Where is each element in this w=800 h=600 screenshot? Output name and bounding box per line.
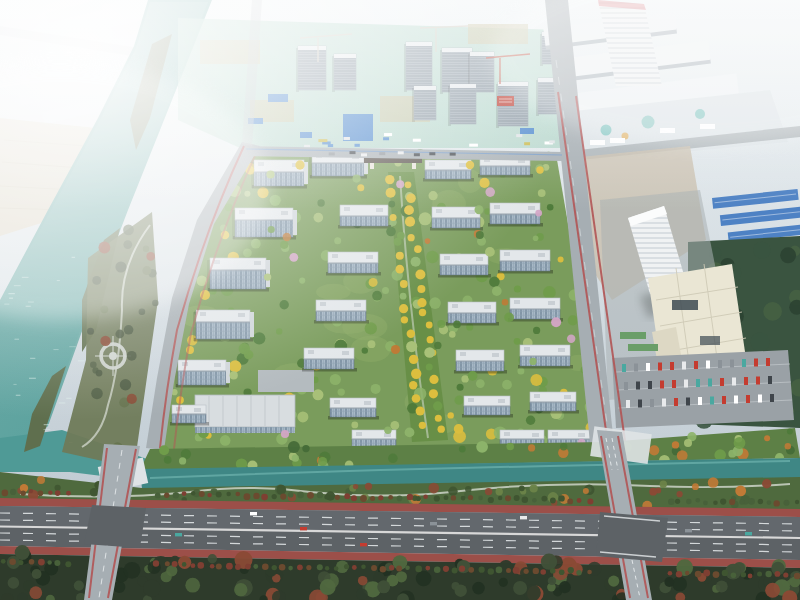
street-tree (461, 496, 466, 501)
ginkgo-tree (386, 227, 396, 237)
tree (492, 286, 502, 296)
tree (514, 285, 521, 292)
tree (543, 286, 556, 299)
street-tree (261, 494, 268, 501)
street-tree (165, 561, 170, 566)
ginkgo-tree (401, 316, 408, 323)
tree (99, 242, 111, 254)
car (745, 532, 752, 535)
ginkgo-tree (406, 193, 416, 203)
street-tree (253, 564, 258, 569)
tree (299, 278, 305, 284)
tree (351, 422, 358, 429)
street-tree (488, 497, 494, 503)
street-tree (703, 570, 710, 577)
tree (429, 483, 440, 494)
ginkgo-tree (419, 309, 426, 316)
tree (664, 577, 674, 587)
street-tree (191, 563, 196, 568)
tree (377, 580, 390, 593)
parked-car (660, 381, 664, 389)
parked-car (682, 362, 686, 370)
street-tree (47, 560, 51, 564)
tree (230, 371, 238, 379)
street-tree (587, 570, 592, 575)
site-vehicle (328, 144, 333, 147)
parked-car (696, 379, 700, 387)
car (250, 512, 257, 515)
tree (37, 476, 45, 484)
street-tree (48, 490, 52, 494)
street-tree (370, 496, 375, 501)
street-tree (210, 564, 215, 569)
tree (734, 437, 746, 449)
ginkgo-tree (390, 214, 397, 221)
apartment-building (462, 396, 513, 418)
tree (124, 562, 141, 579)
tree (318, 457, 327, 466)
apartment-building (314, 300, 369, 324)
street-tree (199, 491, 205, 497)
construction-banner (497, 96, 514, 106)
street-tree (207, 493, 211, 497)
ginkgo-tree (429, 389, 438, 398)
ginkgo-tree (405, 217, 415, 227)
tree (419, 212, 432, 225)
tree (780, 247, 796, 263)
tree (123, 240, 132, 249)
building-facade (328, 263, 378, 273)
tree (499, 578, 508, 587)
tree (535, 210, 542, 217)
parked-car (730, 360, 734, 368)
tree (608, 576, 619, 587)
tree (123, 225, 134, 236)
street-tree (55, 490, 61, 496)
tree (506, 443, 514, 451)
street-tree (434, 495, 440, 501)
street-tree (522, 497, 528, 503)
tree (185, 578, 200, 593)
street-tree (731, 572, 737, 578)
apartment-building (498, 250, 553, 274)
tree (677, 450, 688, 461)
tree (244, 191, 250, 197)
street-tree (380, 566, 386, 572)
apartment-building (326, 252, 381, 276)
ginkgo-tree (405, 181, 412, 188)
parked-car (766, 358, 770, 366)
tree (253, 332, 265, 344)
aerial-photo (0, 0, 800, 600)
tree (714, 449, 726, 461)
street-tree (488, 568, 494, 574)
tree (485, 488, 492, 495)
parked-car (756, 377, 760, 385)
tree (468, 371, 478, 381)
tree (558, 256, 564, 262)
street-tree (425, 566, 430, 571)
building-facade (178, 371, 226, 385)
site-vehicle (384, 133, 392, 136)
ginkgo-tree (394, 238, 402, 246)
tree (568, 315, 578, 325)
parked-car (744, 377, 748, 385)
tree (426, 251, 438, 263)
car (361, 153, 367, 156)
apartment-building (488, 203, 543, 227)
street-tree (335, 495, 340, 500)
street-tree (244, 493, 251, 500)
street-tree (514, 495, 520, 501)
tree (528, 444, 535, 451)
ginkgo-tree (400, 280, 408, 288)
intersection (84, 505, 146, 548)
ginkgo-tree (400, 293, 407, 300)
parked-car (768, 376, 772, 384)
street-tree (324, 495, 329, 500)
car (329, 152, 335, 155)
street-tree (443, 566, 449, 572)
tree (459, 446, 466, 453)
parked-car (622, 364, 626, 372)
tree (115, 330, 124, 339)
street-tree (434, 567, 441, 574)
street-tree (720, 499, 726, 505)
street-tree (675, 499, 680, 504)
parked-car (710, 397, 714, 405)
tree (530, 484, 538, 492)
ginkgo-tree (409, 355, 418, 364)
tree (143, 246, 149, 252)
street-tree (444, 495, 449, 500)
parked-car (722, 396, 726, 404)
tree (87, 328, 94, 335)
parked-car (694, 361, 698, 369)
street-tree (729, 499, 735, 505)
street-tree (226, 492, 230, 496)
ginkgo-tree (411, 369, 421, 379)
tree (96, 370, 103, 377)
building-facade (500, 261, 550, 271)
ginkgo-tree (426, 322, 433, 329)
tree (365, 483, 372, 490)
tree (502, 299, 509, 306)
tree (390, 421, 399, 430)
parked-car (662, 399, 666, 407)
tree (453, 321, 461, 329)
ginkgo-tree (409, 381, 417, 389)
apartment-building (338, 205, 391, 229)
tree (489, 276, 500, 287)
tree (551, 317, 561, 327)
car (450, 153, 456, 156)
car (430, 522, 437, 525)
street-tree (496, 567, 503, 574)
apartment-building (207, 258, 270, 292)
tree (567, 335, 575, 343)
street-tree (226, 563, 233, 570)
aerial-scene-canvas (0, 0, 800, 600)
site-vehicle (413, 139, 421, 142)
building-facade (210, 270, 266, 289)
building-facade (254, 172, 304, 186)
street-tree (272, 494, 277, 499)
tree (504, 313, 514, 323)
tree (179, 457, 186, 464)
tree (476, 379, 485, 388)
site-vehicle (549, 140, 555, 143)
ginkgo-tree (424, 347, 435, 358)
building-facade (490, 214, 540, 224)
tree (476, 441, 488, 453)
street-tree (576, 570, 581, 575)
construction-tower (412, 86, 436, 122)
construction-tower (448, 84, 476, 126)
tree (461, 375, 468, 382)
tree (787, 428, 793, 434)
tree (270, 195, 281, 206)
tree (455, 396, 464, 405)
tree (429, 297, 441, 309)
ginkgo-tree (419, 422, 426, 429)
tree (257, 187, 268, 198)
parked-car (638, 400, 642, 408)
site-vehicle (343, 137, 349, 140)
tree (32, 569, 42, 579)
tree (120, 379, 131, 390)
tree (288, 441, 300, 453)
site-vehicle (355, 144, 360, 147)
tree (127, 394, 137, 404)
street-tree (550, 498, 556, 504)
tree (358, 576, 368, 586)
tree (90, 488, 98, 496)
street-tree (741, 572, 746, 577)
street-tree (765, 571, 771, 577)
street-tree (587, 498, 593, 504)
car (429, 152, 435, 155)
tree (100, 336, 110, 346)
tree (514, 338, 521, 345)
tree (692, 483, 699, 490)
tree (479, 178, 489, 188)
street-tree (540, 569, 546, 575)
tree (457, 384, 464, 391)
tree (533, 327, 540, 334)
tree (559, 581, 571, 593)
street-tree (272, 565, 277, 570)
street-tree (153, 560, 159, 566)
ginkgo-tree (411, 257, 421, 267)
street-tree (505, 495, 511, 501)
street-tree (172, 561, 178, 567)
tree (765, 583, 780, 598)
street-tree (676, 571, 682, 577)
tree (313, 389, 324, 400)
tree (142, 266, 151, 275)
street-tree (773, 500, 779, 506)
tree (735, 486, 746, 497)
street-tree (423, 495, 428, 500)
tree (283, 233, 291, 241)
apartment-building (438, 254, 491, 278)
tree (764, 435, 770, 441)
ginkgo-tree (388, 201, 395, 208)
tree (100, 305, 108, 313)
building-facade (425, 170, 471, 179)
tree (152, 300, 158, 306)
street-tree (713, 571, 720, 578)
street-tree (360, 495, 367, 502)
street-tree (685, 571, 689, 575)
street-tree (775, 571, 781, 577)
parked-car (624, 382, 628, 390)
street-tree (18, 560, 23, 565)
street-tree (748, 574, 753, 579)
street-tree (307, 492, 314, 499)
tree (289, 253, 298, 262)
tree (29, 586, 42, 599)
tree (229, 360, 241, 372)
tree (391, 345, 400, 354)
tree (530, 374, 542, 386)
tree (208, 554, 217, 563)
tree (513, 581, 527, 595)
tree (276, 485, 286, 495)
tree (372, 291, 382, 301)
street-tree (451, 495, 456, 500)
parked-car (746, 395, 750, 403)
street-tree (739, 500, 744, 505)
street-tree (66, 491, 71, 496)
street-tree (371, 565, 377, 571)
street-tree (280, 494, 286, 500)
tree (317, 199, 324, 206)
ginkgo-tree (466, 161, 474, 169)
tree (708, 477, 719, 488)
tree (382, 287, 389, 294)
ginkgo-tree (416, 407, 425, 416)
tree (338, 388, 345, 395)
street-tree (2, 490, 9, 497)
street-tree (155, 493, 161, 499)
tree (429, 191, 438, 200)
construction-tower (296, 46, 326, 92)
tree (146, 252, 155, 261)
street-tree (253, 493, 259, 499)
street-tree (695, 498, 700, 503)
apartment-building (454, 350, 507, 374)
street-tree (288, 566, 293, 571)
tree (365, 322, 377, 334)
tree (320, 579, 336, 595)
street-tree (297, 564, 303, 570)
street-tree (668, 571, 673, 576)
tree (143, 580, 160, 597)
street-tree (279, 564, 286, 571)
tree (453, 430, 466, 443)
building-facade (480, 166, 530, 175)
tree (239, 343, 250, 354)
building-facade (530, 402, 576, 411)
tree (762, 479, 771, 488)
ginkgo-tree (417, 298, 426, 307)
street-tree (29, 489, 33, 493)
parked-car (626, 400, 630, 408)
parked-car (742, 359, 746, 367)
tree (548, 577, 556, 585)
parked-car (672, 380, 676, 388)
street-tree (306, 565, 311, 570)
street-tree (216, 492, 222, 498)
street-tree (713, 500, 718, 505)
parked-car (754, 359, 758, 367)
tree (139, 308, 146, 315)
tree (416, 571, 432, 587)
street-tree (498, 496, 502, 500)
parked-car (732, 378, 736, 386)
tree (560, 443, 567, 450)
building-facade (316, 311, 366, 321)
site-vehicle (383, 137, 389, 140)
ginkgo-tree (415, 269, 425, 279)
ginkgo-tree (386, 188, 396, 198)
street-tree (325, 566, 329, 570)
construction-tower (404, 42, 432, 92)
tree (90, 362, 97, 369)
ginkgo-tree (438, 425, 445, 432)
tree (502, 380, 512, 390)
tree (448, 412, 454, 418)
street-tree (577, 498, 582, 503)
street-tree (191, 491, 195, 495)
street-tree (352, 565, 357, 570)
parked-car (650, 399, 654, 407)
commercial-plaza (258, 370, 314, 392)
street-tree (262, 563, 269, 570)
car (360, 543, 367, 546)
ginkgo-tree (412, 394, 421, 403)
street-tree (20, 491, 25, 496)
street-tree (550, 568, 556, 574)
bus-shelter (628, 344, 658, 351)
street-tree (38, 490, 44, 496)
street-tree (164, 493, 169, 498)
street-tree (533, 568, 539, 574)
street-tree (38, 559, 45, 566)
site-vehicle (516, 134, 522, 137)
street-tree (524, 569, 529, 574)
tree (485, 187, 495, 197)
ginkgo-tree (414, 245, 422, 253)
building-facade (520, 356, 570, 366)
tree (297, 411, 308, 422)
parked-car (706, 361, 710, 369)
apartment-building (446, 302, 499, 326)
car (414, 153, 420, 156)
apartment-building (302, 348, 357, 372)
street-tree (558, 495, 564, 501)
tree (55, 485, 61, 491)
street-tree (216, 563, 222, 569)
ginkgo-tree (407, 330, 415, 338)
tree (753, 242, 770, 259)
building-facade (304, 359, 354, 369)
parked-car (734, 396, 738, 404)
tree (266, 170, 274, 178)
tree (334, 237, 341, 244)
